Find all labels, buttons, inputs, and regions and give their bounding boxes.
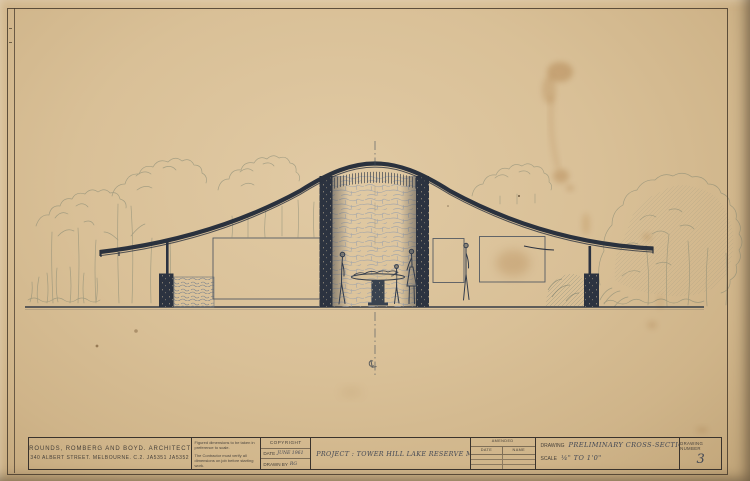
drawn-by-value: RG	[290, 462, 297, 467]
date-label: DATE	[263, 451, 275, 456]
drawn-by-label: DRAWN BY	[263, 462, 288, 467]
sheet-border	[7, 8, 728, 475]
date-value: JUNE 1961	[277, 451, 303, 456]
copyright-box: COPYRIGHT DATE JUNE 1961 DRAWN BY RG	[260, 438, 310, 469]
margin-tick	[9, 42, 12, 43]
project-box: PROJECT : TOWER HILL LAKE RESERVE MUSEUM	[310, 438, 470, 469]
drawing-number-value: 3	[696, 452, 704, 467]
amended-name-col: NAME	[502, 447, 534, 454]
sheet-border-inner-left	[14, 8, 15, 473]
architect-address: 340 ALBERT STREET. MELBOURNE. C.2. JA535…	[30, 455, 189, 461]
amended-label: AMENDED	[471, 438, 535, 447]
note-dimensions: Figured dimensions to be taken in prefer…	[195, 440, 258, 450]
architect-box: GROUNDS, ROMBERG AND BOYD. ARCHITECTS 34…	[29, 438, 191, 469]
drawing-label: DRAWING	[541, 443, 565, 449]
amended-row	[471, 465, 535, 469]
project-title: PROJECT : TOWER HILL LAKE RESERVE MUSEUM	[316, 450, 470, 458]
note-contractor: The Contractor must verify all dimension…	[195, 453, 258, 468]
margin-tick	[9, 28, 12, 29]
amended-box: AMENDED DATE NAME	[470, 438, 535, 469]
drawing-number-label: DRAWING NUMBER	[680, 441, 721, 451]
notes-box: Figured dimensions to be taken in prefer…	[191, 438, 261, 469]
copyright-label: COPYRIGHT	[261, 438, 310, 448]
drawing-title-box: DRAWING PRELIMINARY CROSS-SECTION SCALE …	[535, 438, 680, 469]
amended-date-col: DATE	[471, 447, 502, 454]
drawing-title: PRELIMINARY CROSS-SECTION	[569, 441, 680, 449]
drawing-sheet: ℄ GROUNDS, ROMBERG AND BOYD. A	[0, 0, 750, 481]
drawing-number-box: DRAWING NUMBER 3	[679, 438, 721, 469]
title-block: GROUNDS, ROMBERG AND BOYD. ARCHITECTS 34…	[28, 437, 722, 470]
architect-name: GROUNDS, ROMBERG AND BOYD. ARCHITECTS	[29, 446, 191, 452]
scale-label: SCALE	[541, 456, 557, 462]
scale-value: ¼" TO 1'0"	[561, 454, 602, 462]
